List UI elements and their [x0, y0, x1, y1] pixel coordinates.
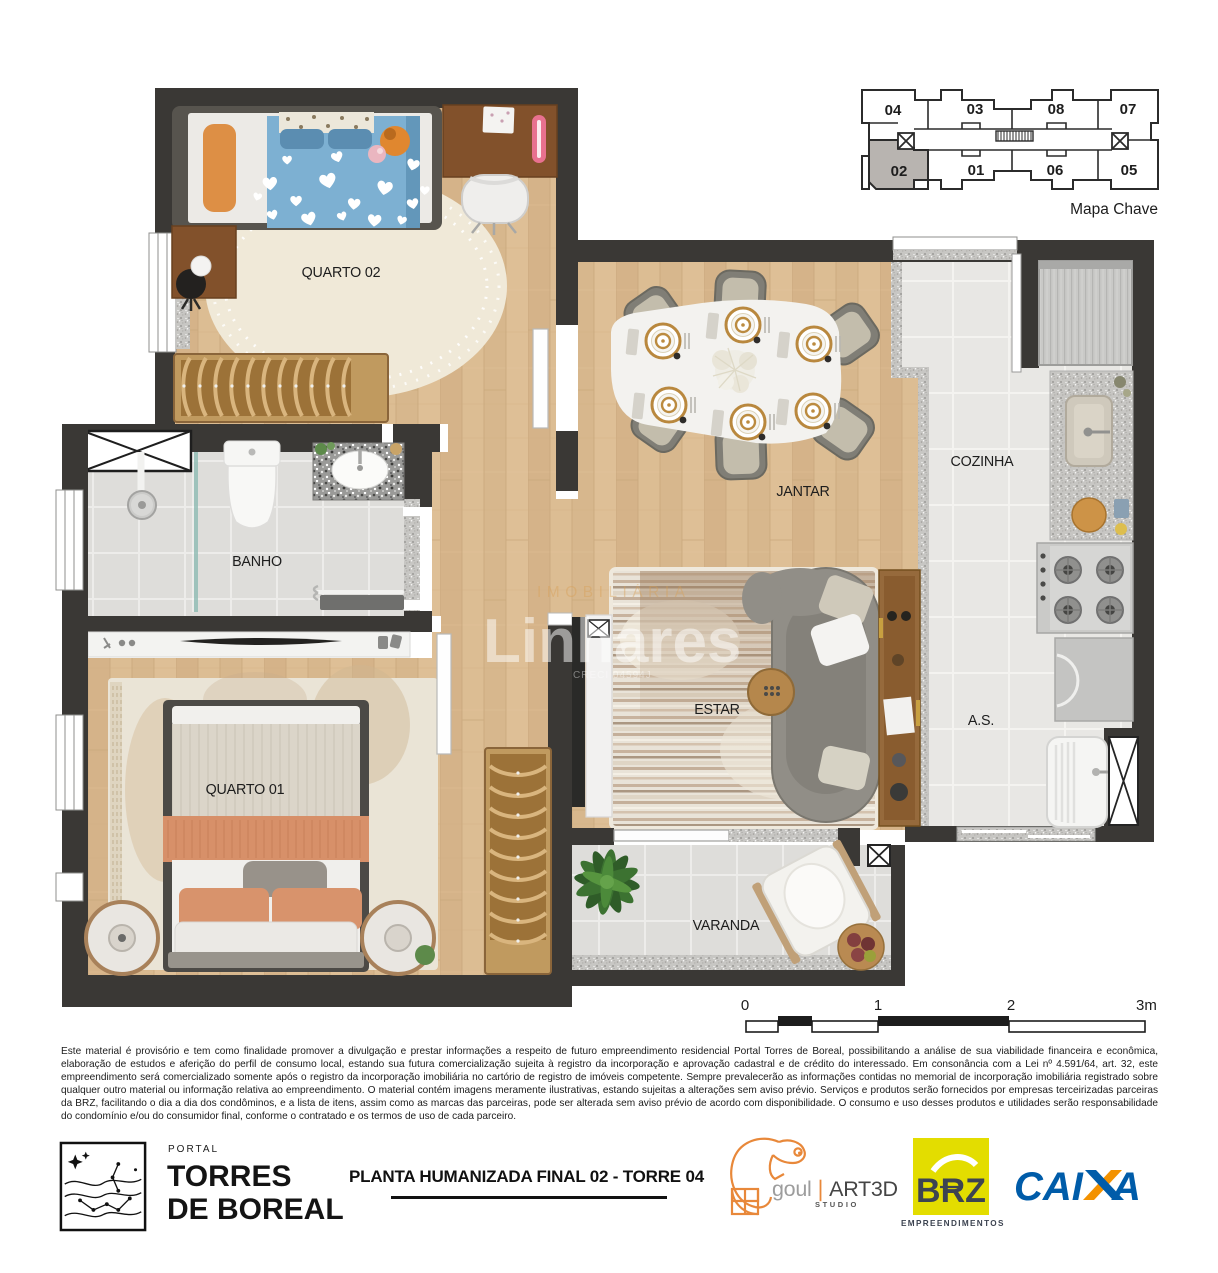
svg-text:2: 2 — [1007, 997, 1015, 1014]
svg-text:QUARTO 01: QUARTO 01 — [206, 782, 285, 798]
svg-text:01: 01 — [968, 162, 985, 179]
svg-text:06: 06 — [1047, 162, 1064, 179]
svg-text:Linhares: Linhares — [483, 607, 741, 676]
svg-text:IMOBILIÁRIA: IMOBILIÁRIA — [537, 584, 691, 601]
svg-text:A.S.: A.S. — [968, 713, 994, 729]
svg-text:08: 08 — [1048, 101, 1065, 118]
svg-text:Mapa Chave: Mapa Chave — [1070, 201, 1158, 218]
svg-text:JANTAR: JANTAR — [776, 484, 829, 500]
svg-text:BRZ: BRZ — [916, 1172, 986, 1210]
svg-text:05: 05 — [1121, 162, 1138, 179]
svg-text:02: 02 — [891, 163, 908, 180]
svg-text:1: 1 — [874, 997, 882, 1014]
svg-text:QUARTO 02: QUARTO 02 — [302, 265, 381, 281]
svg-text:BANHO: BANHO — [232, 554, 282, 570]
svg-text:ESTAR: ESTAR — [694, 702, 740, 718]
svg-text:0: 0 — [741, 997, 749, 1014]
svg-text:3m: 3m — [1136, 997, 1157, 1014]
svg-text:COZINHA: COZINHA — [951, 454, 1015, 470]
svg-text:CRECI 04594J: CRECI 04594J — [573, 670, 652, 681]
svg-text:CAI: CAI — [1014, 1165, 1084, 1209]
svg-text:04: 04 — [885, 102, 902, 119]
svg-text:03: 03 — [967, 101, 984, 118]
svg-text:07: 07 — [1120, 101, 1137, 118]
svg-text:VARANDA: VARANDA — [693, 918, 760, 934]
